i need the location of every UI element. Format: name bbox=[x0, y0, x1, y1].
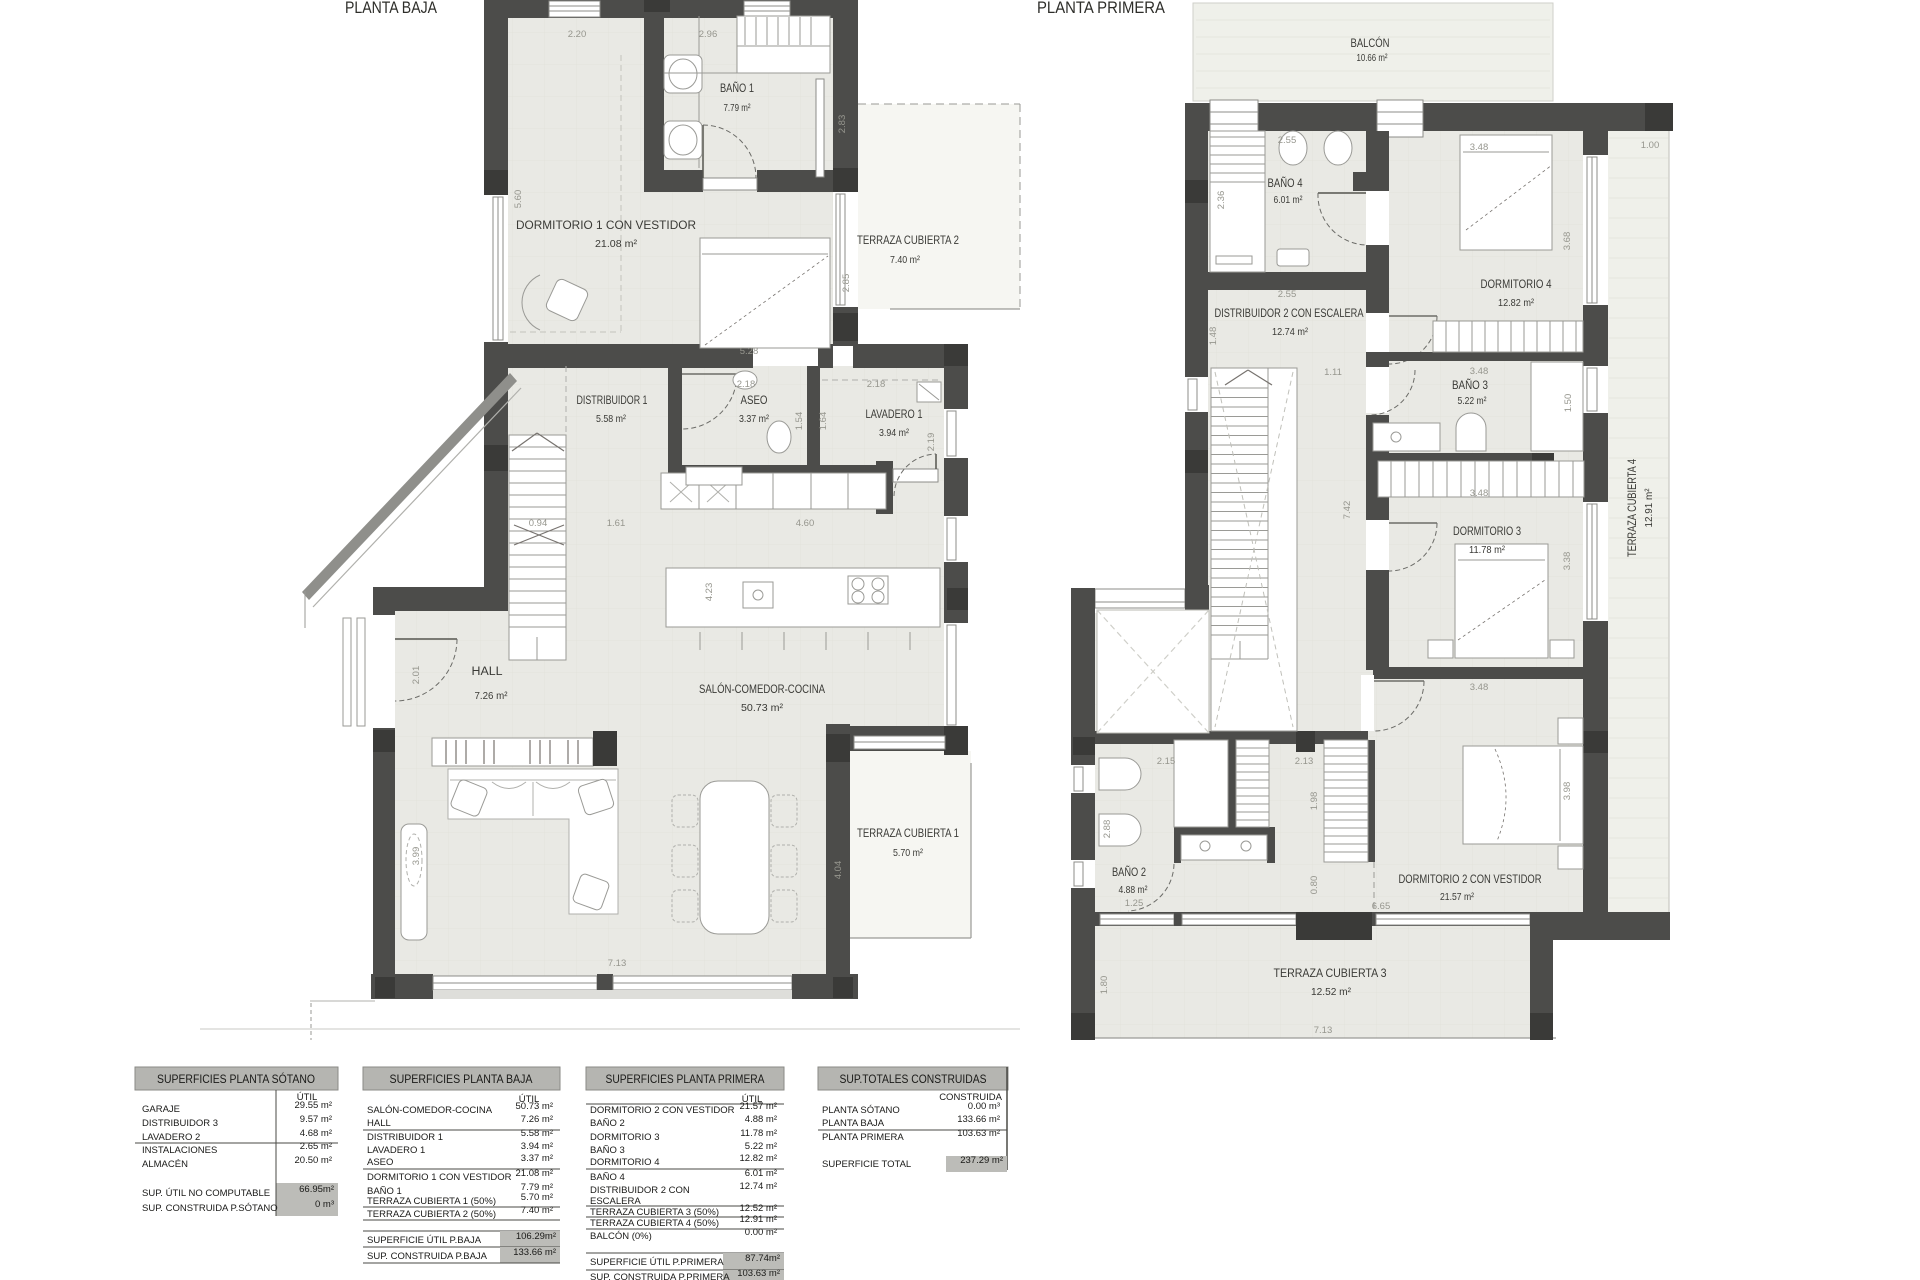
svg-text:5.22 m²: 5.22 m² bbox=[1458, 395, 1487, 407]
svg-text:BAÑO 1: BAÑO 1 bbox=[720, 82, 754, 95]
svg-text:HALL: HALL bbox=[367, 1118, 391, 1129]
svg-text:29.55 m²: 29.55 m² bbox=[295, 1100, 333, 1111]
svg-text:2.83: 2.83 bbox=[837, 115, 848, 134]
svg-text:20.50 m²: 20.50 m² bbox=[295, 1155, 333, 1166]
svg-text:1.48: 1.48 bbox=[1208, 327, 1219, 346]
svg-text:0.00 m³: 0.00 m³ bbox=[968, 1101, 1000, 1112]
svg-text:DISTRIBUIDOR 1: DISTRIBUIDOR 1 bbox=[367, 1132, 443, 1143]
svg-text:7.26 m²: 7.26 m² bbox=[475, 690, 508, 702]
svg-text:12.74 m²: 12.74 m² bbox=[1272, 326, 1308, 338]
svg-text:BALCÓN: BALCÓN bbox=[1351, 37, 1390, 50]
svg-text:21.08 m²: 21.08 m² bbox=[516, 1168, 554, 1179]
svg-text:TERRAZA CUBIERTA 3 (50%): TERRAZA CUBIERTA 3 (50%) bbox=[590, 1207, 719, 1218]
svg-text:SUP. CONSTRUIDA P.BAJA: SUP. CONSTRUIDA P.BAJA bbox=[367, 1251, 488, 1262]
svg-text:DORMITORIO 3: DORMITORIO 3 bbox=[1453, 526, 1521, 538]
svg-text:BAÑO 2: BAÑO 2 bbox=[590, 1118, 625, 1129]
svg-text:0 m³: 0 m³ bbox=[315, 1199, 334, 1210]
svg-text:3.38: 3.38 bbox=[1562, 552, 1573, 571]
svg-text:TERRAZA CUBIERTA 2: TERRAZA CUBIERTA 2 bbox=[857, 235, 959, 247]
svg-text:7.26 m²: 7.26 m² bbox=[521, 1114, 553, 1125]
svg-text:PLANTA PRIMERA: PLANTA PRIMERA bbox=[822, 1132, 904, 1143]
svg-text:PLANTA BAJA: PLANTA BAJA bbox=[345, 0, 438, 17]
svg-text:TERRAZA CUBIERTA 4: TERRAZA CUBIERTA 4 bbox=[1627, 459, 1639, 557]
svg-text:2.18: 2.18 bbox=[867, 379, 886, 390]
svg-text:5.60: 5.60 bbox=[513, 190, 524, 209]
svg-text:133.66 m²: 133.66 m² bbox=[957, 1114, 1000, 1125]
svg-text:2.20: 2.20 bbox=[568, 29, 587, 40]
svg-text:3.48: 3.48 bbox=[1470, 142, 1489, 153]
svg-text:87.74m²: 87.74m² bbox=[745, 1253, 780, 1264]
svg-text:BAÑO 3: BAÑO 3 bbox=[590, 1145, 625, 1156]
svg-text:0.94: 0.94 bbox=[529, 518, 548, 529]
svg-text:3.37 m²: 3.37 m² bbox=[521, 1153, 553, 1164]
svg-text:5.58 m²: 5.58 m² bbox=[596, 413, 626, 425]
svg-text:3.68: 3.68 bbox=[1562, 232, 1573, 251]
svg-text:DORMITORIO 1 CON VESTIDOR: DORMITORIO 1 CON VESTIDOR bbox=[367, 1172, 512, 1183]
svg-text:4.68 m²: 4.68 m² bbox=[300, 1128, 332, 1139]
svg-text:DISTRIBUIDOR 2 CON: DISTRIBUIDOR 2 CON bbox=[590, 1185, 690, 1196]
svg-text:7.40 m²: 7.40 m² bbox=[521, 1205, 553, 1216]
svg-text:TERRAZA CUBIERTA 1 (50%): TERRAZA CUBIERTA 1 (50%) bbox=[367, 1196, 496, 1207]
svg-text:ASEO: ASEO bbox=[741, 395, 768, 407]
svg-text:DISTRIBUIDOR 2 CON ESCALERA: DISTRIBUIDOR 2 CON ESCALERA bbox=[1215, 308, 1364, 320]
svg-text:SUP. CONSTRUIDA P.PRIMERA: SUP. CONSTRUIDA P.PRIMERA bbox=[590, 1272, 730, 1280]
svg-text:SALÓN-COMEDOR-COCINA: SALÓN-COMEDOR-COCINA bbox=[367, 1105, 493, 1116]
svg-text:4.88 m²: 4.88 m² bbox=[1119, 884, 1148, 896]
svg-text:50.73 m²: 50.73 m² bbox=[741, 702, 784, 714]
svg-text:SUPERFICIES PLANTA PRIMERA: SUPERFICIES PLANTA PRIMERA bbox=[606, 1072, 765, 1086]
svg-text:TERRAZA CUBIERTA 1: TERRAZA CUBIERTA 1 bbox=[857, 828, 959, 840]
svg-text:DORMITORIO 2 CON VESTIDOR: DORMITORIO 2 CON VESTIDOR bbox=[1399, 874, 1542, 886]
svg-text:1.54: 1.54 bbox=[794, 412, 805, 431]
svg-text:BALCÓN (0%): BALCÓN (0%) bbox=[590, 1231, 652, 1242]
svg-text:3.48: 3.48 bbox=[1470, 488, 1489, 499]
svg-text:3.98: 3.98 bbox=[1562, 782, 1573, 801]
svg-text:LAVADERO 1: LAVADERO 1 bbox=[866, 409, 923, 421]
svg-text:5.70 m²: 5.70 m² bbox=[521, 1192, 553, 1203]
svg-text:BAÑO 3: BAÑO 3 bbox=[1452, 379, 1488, 392]
svg-text:5.58 m²: 5.58 m² bbox=[521, 1128, 553, 1139]
svg-text:TERRAZA CUBIERTA 2 (50%): TERRAZA CUBIERTA 2 (50%) bbox=[367, 1209, 496, 1220]
svg-text:ESCALERA: ESCALERA bbox=[590, 1196, 641, 1207]
svg-text:LAVADERO 1: LAVADERO 1 bbox=[367, 1145, 425, 1156]
svg-text:2.55: 2.55 bbox=[1278, 135, 1297, 146]
svg-text:2.55: 2.55 bbox=[1278, 289, 1297, 300]
svg-text:2.36: 2.36 bbox=[1216, 191, 1227, 210]
svg-text:4.60: 4.60 bbox=[796, 518, 815, 529]
svg-text:TERRAZA CUBIERTA 4 (50%): TERRAZA CUBIERTA 4 (50%) bbox=[590, 1218, 719, 1229]
svg-text:HALL: HALL bbox=[472, 666, 504, 678]
svg-text:7.40 m²: 7.40 m² bbox=[890, 254, 920, 266]
svg-text:ALMACÉN: ALMACÉN bbox=[142, 1159, 188, 1170]
svg-text:1.64: 1.64 bbox=[818, 412, 829, 431]
svg-text:1.80: 1.80 bbox=[1099, 976, 1110, 995]
svg-text:SUP. ÚTIL NO COMPUTABLE: SUP. ÚTIL NO COMPUTABLE bbox=[142, 1188, 270, 1199]
svg-text:5.28: 5.28 bbox=[740, 346, 759, 357]
svg-text:DISTRIBUIDOR 3: DISTRIBUIDOR 3 bbox=[142, 1118, 218, 1129]
svg-text:SUPERFICIES PLANTA SÓTANO: SUPERFICIES PLANTA SÓTANO bbox=[157, 1071, 315, 1086]
svg-text:PLANTA PRIMERA: PLANTA PRIMERA bbox=[1037, 0, 1166, 17]
svg-text:DORMITORIO 4: DORMITORIO 4 bbox=[590, 1157, 660, 1168]
svg-text:3.99: 3.99 bbox=[411, 847, 422, 866]
svg-text:1.50: 1.50 bbox=[1563, 394, 1574, 413]
svg-text:237.29 m²: 237.29 m² bbox=[960, 1155, 1003, 1166]
svg-text:4.88 m²: 4.88 m² bbox=[745, 1114, 777, 1125]
svg-text:DORMITORIO 4: DORMITORIO 4 bbox=[1481, 279, 1552, 291]
svg-text:DORMITORIO 3: DORMITORIO 3 bbox=[590, 1132, 660, 1143]
svg-text:5.70 m²: 5.70 m² bbox=[893, 847, 923, 859]
svg-text:SUPERFICIE TOTAL: SUPERFICIE TOTAL bbox=[822, 1159, 911, 1170]
svg-text:2.65 m²: 2.65 m² bbox=[300, 1141, 332, 1152]
svg-text:TERRAZA CUBIERTA 3: TERRAZA CUBIERTA 3 bbox=[1274, 968, 1387, 980]
svg-text:3.94 m²: 3.94 m² bbox=[521, 1141, 553, 1152]
svg-text:5.22 m²: 5.22 m² bbox=[745, 1141, 777, 1152]
svg-text:12.91 m²: 12.91 m² bbox=[740, 1214, 778, 1225]
svg-text:SUP. CONSTRUIDA P.SÓTANO: SUP. CONSTRUIDA P.SÓTANO bbox=[142, 1203, 278, 1214]
svg-text:11.78 m²: 11.78 m² bbox=[740, 1128, 777, 1139]
svg-text:2.18: 2.18 bbox=[737, 379, 756, 390]
svg-text:2.85: 2.85 bbox=[841, 274, 852, 293]
svg-text:1.25: 1.25 bbox=[1125, 898, 1144, 909]
svg-text:1.61: 1.61 bbox=[607, 518, 626, 529]
svg-text:PLANTA BAJA: PLANTA BAJA bbox=[822, 1118, 885, 1129]
svg-text:6.01 m²: 6.01 m² bbox=[745, 1168, 777, 1179]
svg-text:50.73 m²: 50.73 m² bbox=[516, 1101, 554, 1112]
svg-text:12.74 m²: 12.74 m² bbox=[740, 1181, 778, 1192]
svg-text:103.63 m²: 103.63 m² bbox=[737, 1268, 780, 1279]
svg-text:4.04: 4.04 bbox=[833, 861, 844, 880]
svg-text:3.48: 3.48 bbox=[1470, 682, 1489, 693]
svg-text:2.19: 2.19 bbox=[926, 433, 937, 452]
svg-text:BAÑO 4: BAÑO 4 bbox=[590, 1172, 625, 1183]
svg-text:12.91 m²: 12.91 m² bbox=[1643, 488, 1655, 527]
svg-text:12.52 m²: 12.52 m² bbox=[1311, 986, 1351, 998]
svg-text:133.66 m²: 133.66 m² bbox=[513, 1247, 556, 1258]
svg-text:PLANTA SÓTANO: PLANTA SÓTANO bbox=[822, 1105, 900, 1116]
svg-text:ASEO: ASEO bbox=[367, 1157, 393, 1168]
svg-text:2.13: 2.13 bbox=[1295, 756, 1314, 767]
svg-text:BAÑO 4: BAÑO 4 bbox=[1268, 177, 1303, 190]
svg-text:SALÓN-COMEDOR-COCINA: SALÓN-COMEDOR-COCINA bbox=[699, 683, 825, 696]
svg-text:9.57 m²: 9.57 m² bbox=[300, 1114, 332, 1125]
svg-text:6.65: 6.65 bbox=[1372, 901, 1391, 912]
svg-text:0.00 m²: 0.00 m² bbox=[745, 1227, 777, 1238]
svg-text:7.13: 7.13 bbox=[1314, 1025, 1333, 1036]
svg-text:7.13: 7.13 bbox=[608, 958, 627, 969]
svg-text:SUPERFICIE ÚTIL P.BAJA: SUPERFICIE ÚTIL P.BAJA bbox=[367, 1235, 482, 1246]
svg-text:SUPERFICIES PLANTA BAJA: SUPERFICIES PLANTA BAJA bbox=[390, 1072, 533, 1086]
svg-text:GARAJE: GARAJE bbox=[142, 1104, 180, 1115]
svg-text:2.96: 2.96 bbox=[699, 29, 718, 40]
svg-text:INSTALACIONES: INSTALACIONES bbox=[142, 1145, 217, 1156]
svg-text:4.23: 4.23 bbox=[704, 583, 715, 602]
svg-text:LAVADERO 2: LAVADERO 2 bbox=[142, 1132, 200, 1143]
svg-text:0.80: 0.80 bbox=[1309, 876, 1320, 895]
svg-text:6.01 m²: 6.01 m² bbox=[1274, 194, 1303, 206]
svg-text:DISTRIBUIDOR 1: DISTRIBUIDOR 1 bbox=[577, 395, 648, 407]
svg-text:103.63 m²: 103.63 m² bbox=[957, 1128, 1000, 1139]
svg-text:1.98: 1.98 bbox=[1309, 792, 1320, 811]
svg-text:3.48: 3.48 bbox=[1470, 366, 1489, 377]
svg-text:21.57 m²: 21.57 m² bbox=[740, 1101, 778, 1112]
svg-text:21.08 m²: 21.08 m² bbox=[595, 238, 638, 250]
svg-text:12.52 m²: 12.52 m² bbox=[740, 1203, 778, 1214]
svg-text:3.94 m²: 3.94 m² bbox=[879, 427, 909, 439]
svg-text:1.11: 1.11 bbox=[1324, 367, 1342, 378]
svg-text:12.82 m²: 12.82 m² bbox=[740, 1153, 778, 1164]
svg-text:2.01: 2.01 bbox=[411, 666, 422, 685]
svg-text:12.82 m²: 12.82 m² bbox=[1498, 297, 1534, 309]
svg-text:3.37 m²: 3.37 m² bbox=[739, 413, 769, 425]
svg-text:SUPERFICIE ÚTIL P.PRIMERA: SUPERFICIE ÚTIL P.PRIMERA bbox=[590, 1257, 724, 1268]
svg-text:DORMITORIO 2 CON VESTIDOR: DORMITORIO 2 CON VESTIDOR bbox=[590, 1105, 735, 1116]
svg-text:7.79 m²: 7.79 m² bbox=[724, 102, 751, 114]
svg-text:2.88: 2.88 bbox=[1102, 820, 1113, 839]
svg-text:21.57 m²: 21.57 m² bbox=[1440, 891, 1474, 903]
svg-text:7.42: 7.42 bbox=[1342, 501, 1353, 520]
svg-text:DORMITORIO 1 CON VESTIDOR: DORMITORIO 1 CON VESTIDOR bbox=[516, 220, 696, 232]
svg-text:10.66 m²: 10.66 m² bbox=[1357, 52, 1388, 64]
svg-text:11.78 m²: 11.78 m² bbox=[1469, 544, 1505, 556]
svg-text:2.15: 2.15 bbox=[1157, 756, 1176, 767]
svg-text:BAÑO 2: BAÑO 2 bbox=[1112, 866, 1146, 879]
svg-text:SUP.TOTALES CONSTRUIDAS: SUP.TOTALES CONSTRUIDAS bbox=[840, 1072, 987, 1086]
svg-text:106.29m²: 106.29m² bbox=[516, 1231, 556, 1242]
svg-text:66.95m²: 66.95m² bbox=[299, 1184, 334, 1195]
svg-text:1.00: 1.00 bbox=[1641, 140, 1660, 151]
